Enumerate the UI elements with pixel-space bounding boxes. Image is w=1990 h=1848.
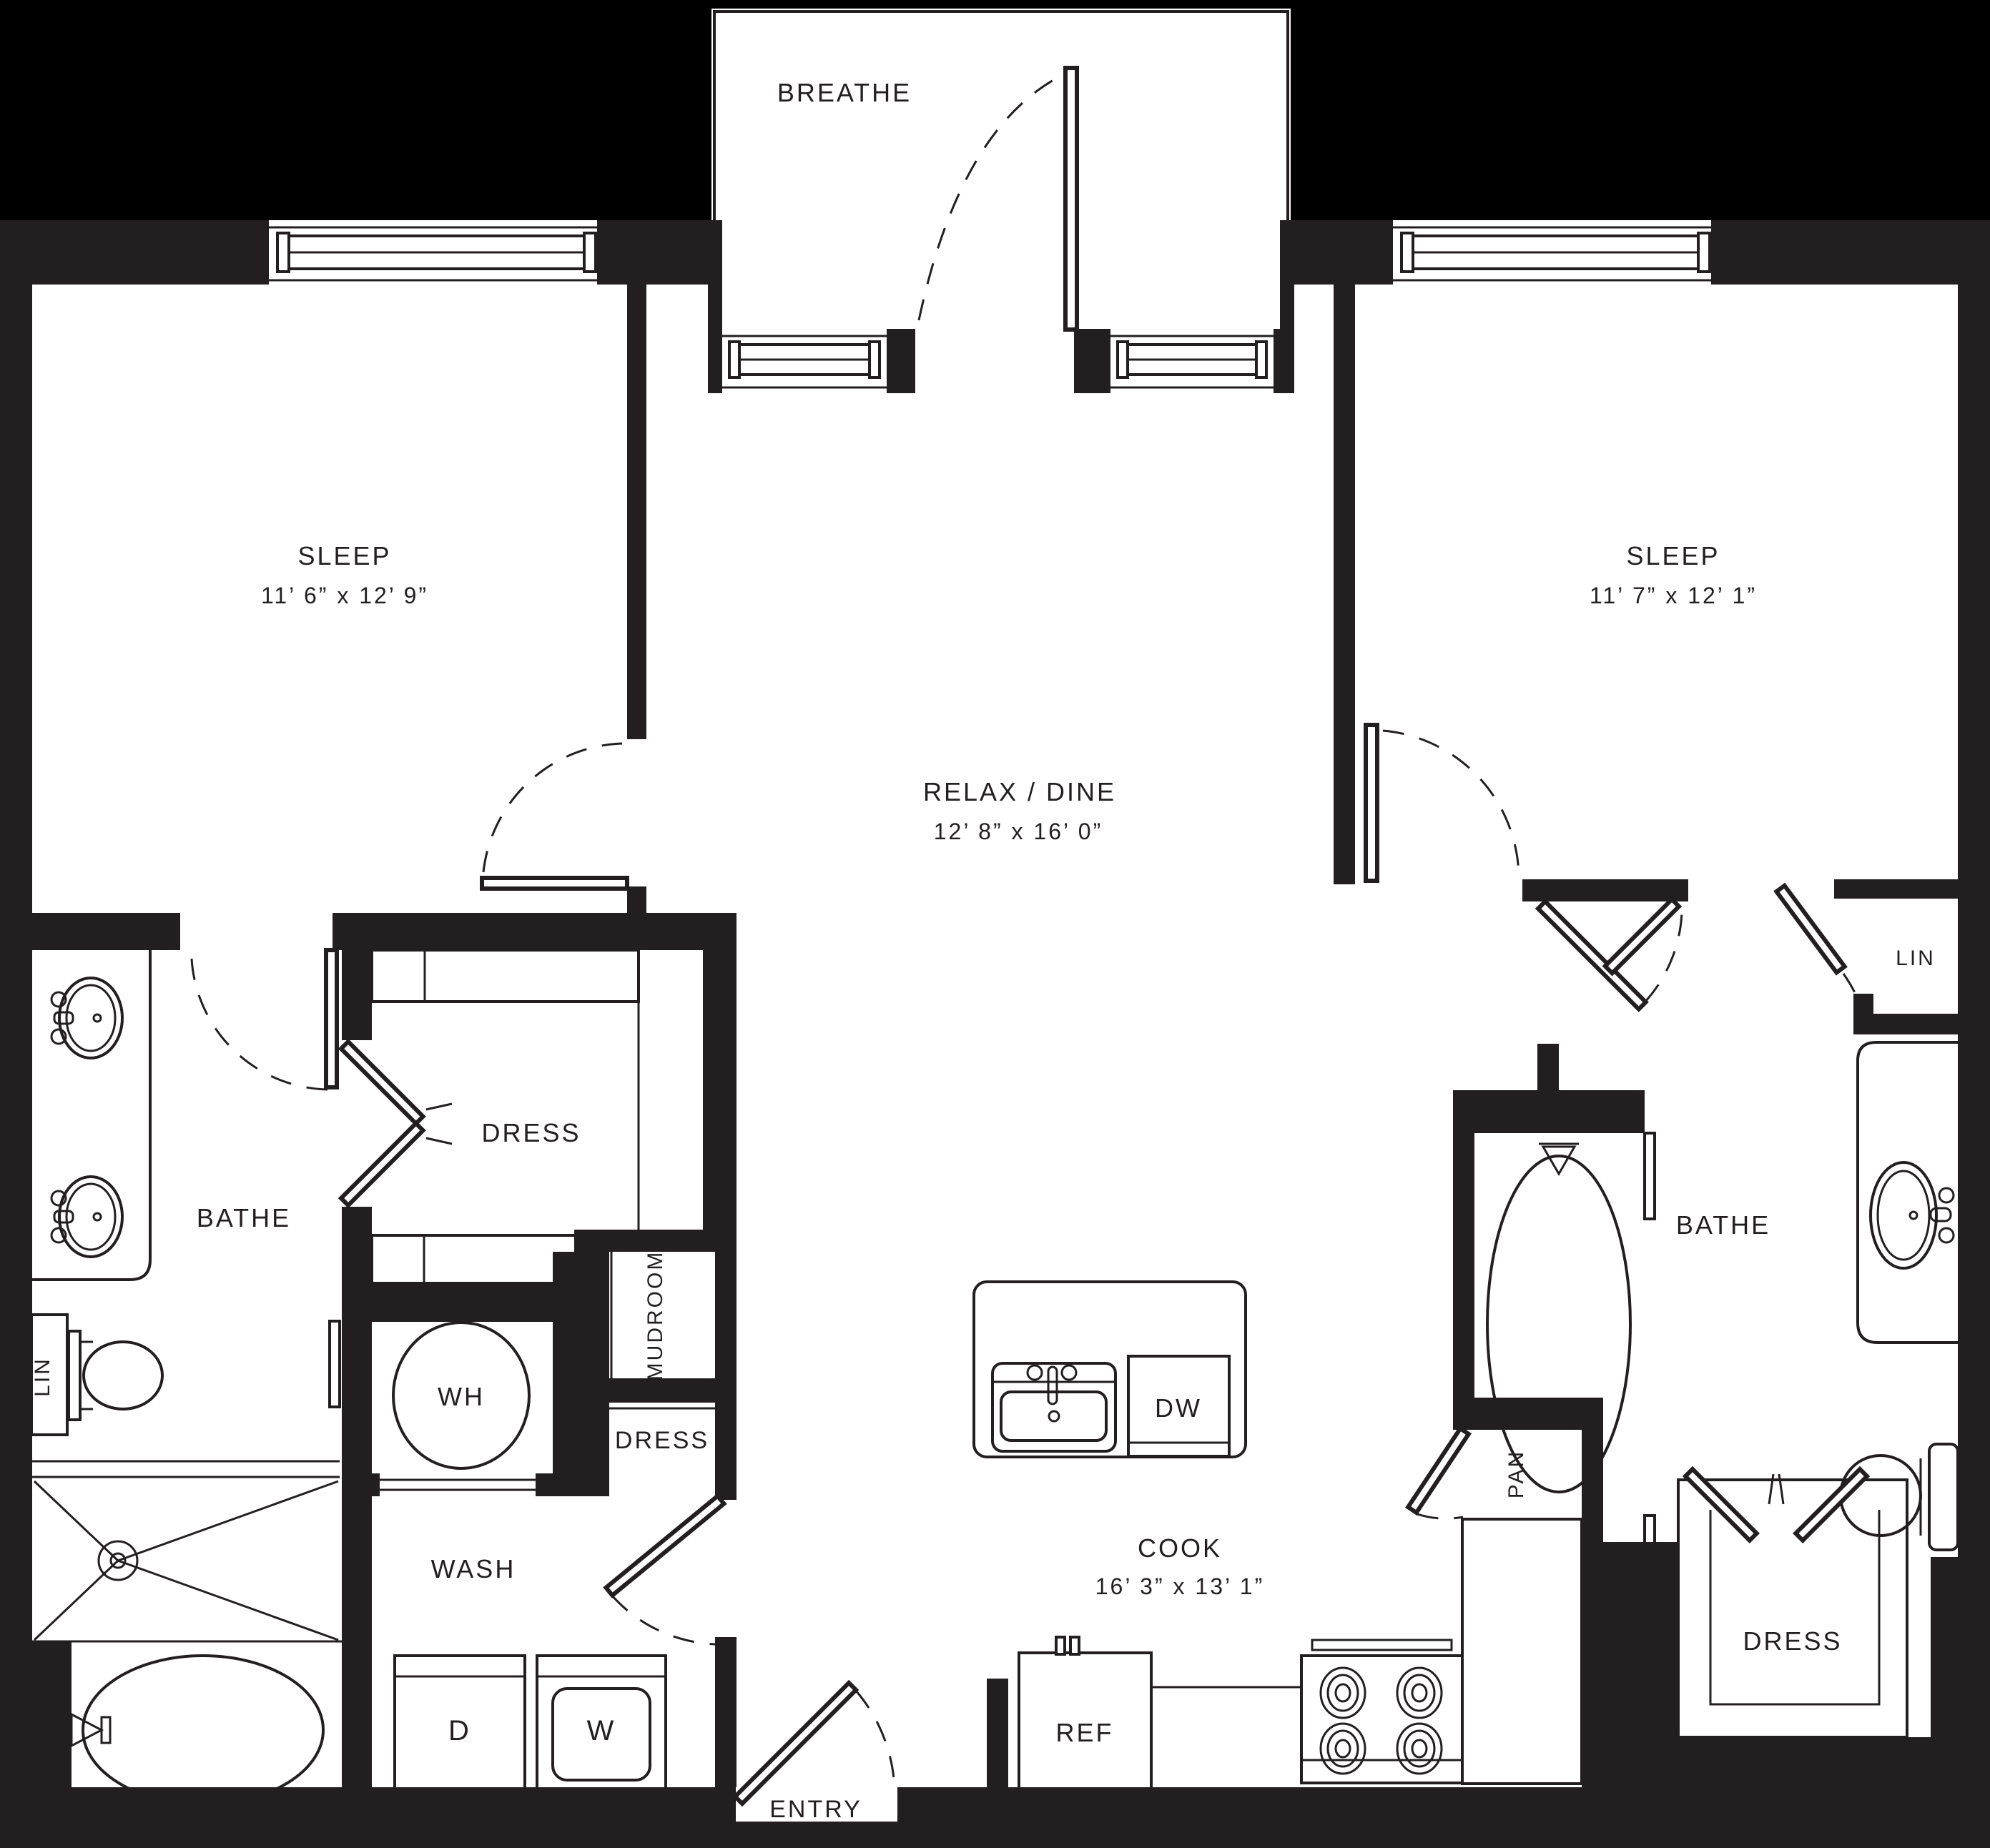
- water-heater-label: WH: [438, 1382, 485, 1411]
- sleep-right-label: SLEEP: [1626, 541, 1720, 570]
- sleep-right-dims: 11’ 7” x 12’ 1”: [1590, 583, 1757, 608]
- mudroom-label: MUDROOM: [644, 1250, 667, 1381]
- wh-sliding-door: [380, 1473, 536, 1496]
- linen-right-label: LIN: [1896, 947, 1936, 970]
- dress-right-label: DRESS: [1743, 1626, 1842, 1656]
- relax-dine-label: RELAX / DINE: [923, 777, 1116, 806]
- bathe-right-label: BATHE: [1676, 1210, 1770, 1240]
- linen-left-label: LIN: [31, 1357, 54, 1397]
- window-sleep-right: [1393, 220, 1711, 285]
- bathe-left-label: BATHE: [197, 1203, 291, 1232]
- cook-label: COOK: [1138, 1533, 1222, 1563]
- window-balcony-right: [1110, 329, 1274, 393]
- balcony-label: BREATHE: [777, 78, 912, 107]
- floor-plan: BREATHE SLEEP 11’ 6” x 12’ 9” SLEEP 11’ …: [0, 0, 1990, 1848]
- relax-dine-dims: 12’ 8” x 16’ 0”: [934, 819, 1103, 844]
- washer-label: W: [587, 1715, 616, 1746]
- sleep-left-label: SLEEP: [297, 541, 391, 570]
- balcony-door-opening: [915, 329, 1074, 393]
- sleep-left-dims: 11’ 6” x 12’ 9”: [261, 583, 428, 608]
- entry-label: ENTRY: [769, 1796, 862, 1823]
- floorplan-svg: BREATHE SLEEP 11’ 6” x 12’ 9” SLEEP 11’ …: [0, 0, 1990, 1848]
- dress-left-label: DRESS: [481, 1118, 581, 1147]
- pantry-label: PAN: [1504, 1450, 1528, 1498]
- refrigerator-label: REF: [1056, 1718, 1114, 1747]
- dress-hall-label: DRESS: [615, 1427, 709, 1454]
- wash-label: WASH: [431, 1554, 516, 1583]
- window-sleep-left: [269, 220, 597, 285]
- cook-dims: 16’ 3” x 13’ 1”: [1095, 1573, 1265, 1599]
- dryer-label: D: [448, 1715, 471, 1746]
- dishwasher-label: DW: [1155, 1393, 1202, 1423]
- balcony-deck: [711, 9, 1291, 329]
- window-balcony-left: [722, 329, 887, 393]
